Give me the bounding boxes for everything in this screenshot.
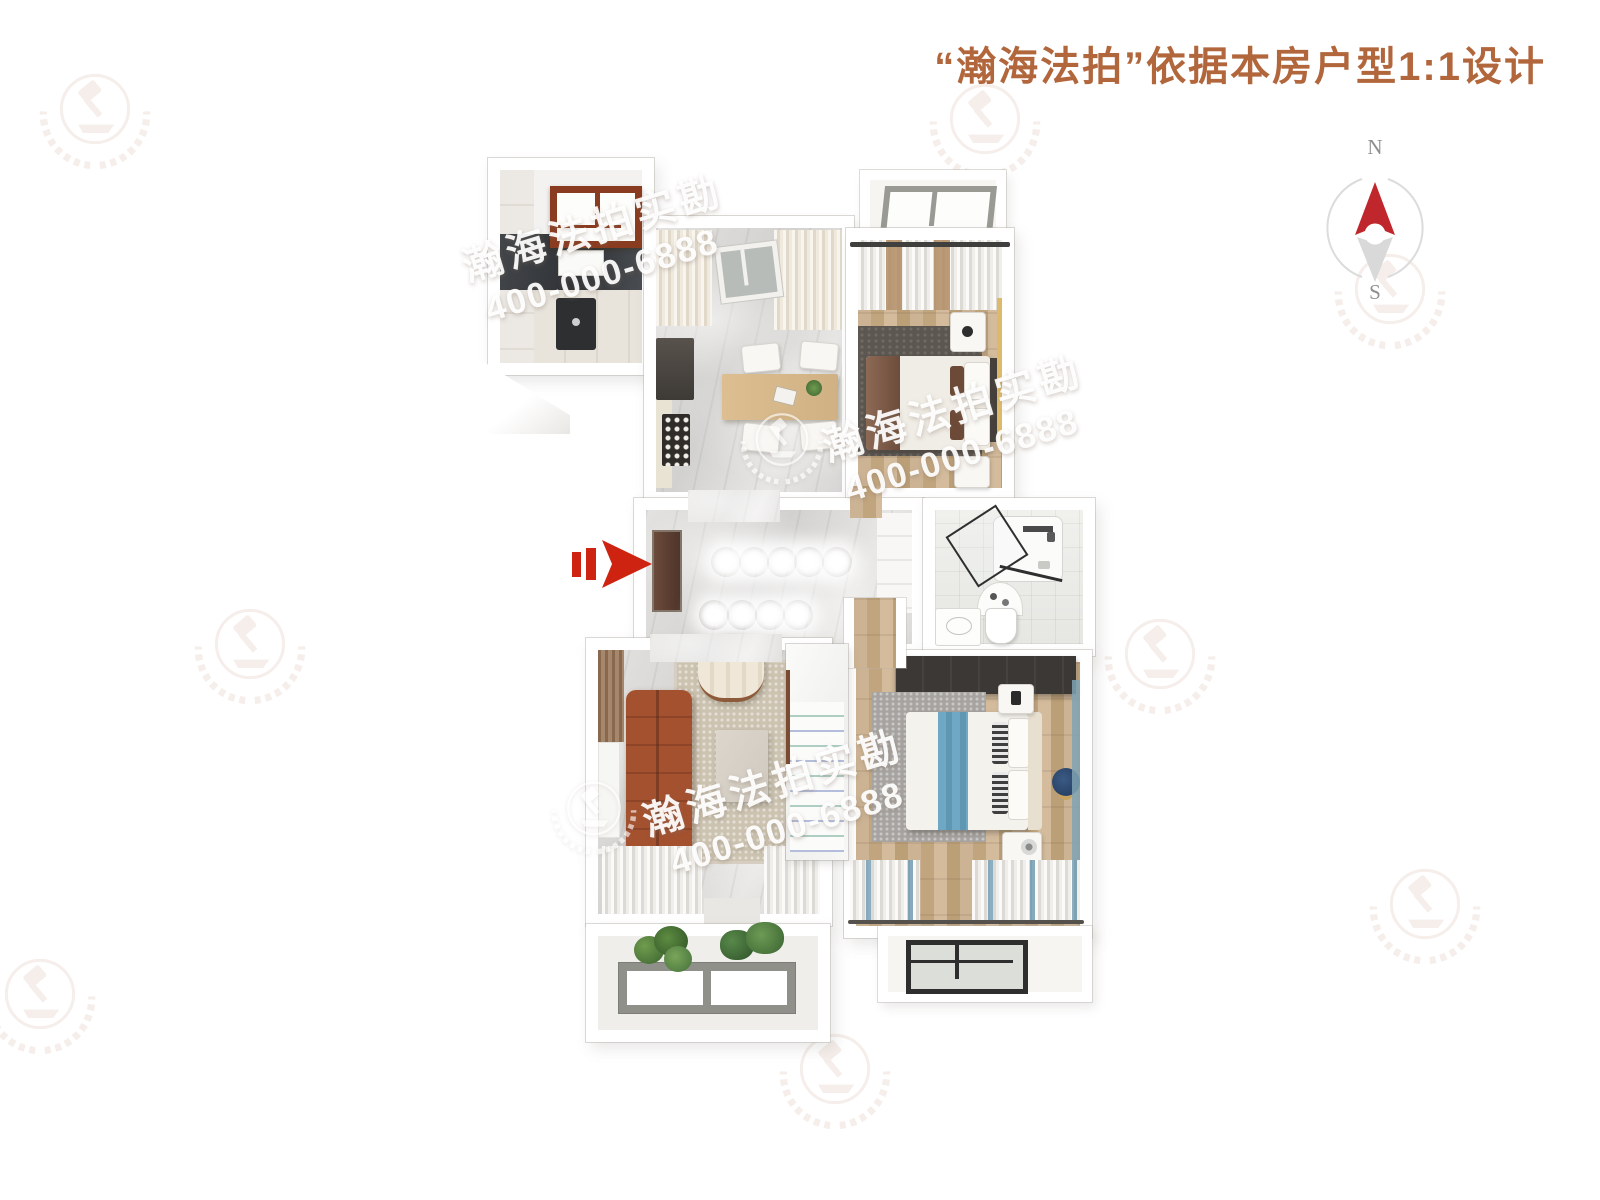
ceiling-light — [822, 547, 852, 577]
south-bay-window — [878, 926, 1092, 1002]
doorway-dining-hallway — [688, 490, 780, 522]
curtain-rod — [850, 242, 1010, 247]
bay-window-glass — [906, 940, 1028, 994]
shoe-cabinet — [662, 414, 690, 466]
niche-item-icon — [1002, 599, 1009, 606]
fan-icon — [1021, 839, 1037, 855]
window-pane — [711, 971, 787, 1005]
background-watermark-logo-icon — [35, 55, 155, 175]
plant — [720, 922, 786, 970]
bathroom — [923, 498, 1095, 656]
plant — [634, 926, 694, 978]
dining-curtain — [774, 230, 842, 330]
table-plant — [806, 380, 822, 396]
pillow — [1008, 770, 1030, 820]
brand-watermark-logo-icon — [737, 399, 827, 489]
compass-north-label: N — [1367, 135, 1382, 159]
bedroom-corridor — [844, 598, 906, 668]
ceiling-light — [711, 547, 741, 577]
curtain-gap — [934, 240, 950, 310]
dining-chair — [741, 342, 782, 374]
nightstand — [998, 684, 1034, 714]
table-lamp-icon — [962, 326, 973, 337]
plant-leaf — [746, 922, 784, 954]
floorplan-canvas: “瀚海法拍”依据本房户型1:1设计 N S — [0, 0, 1600, 1200]
sideboard — [656, 338, 694, 400]
ceiling-light — [794, 547, 824, 577]
ceiling-light — [767, 547, 797, 577]
headboard — [1028, 712, 1042, 830]
accent-pillow — [992, 772, 1008, 814]
niche-item-icon — [990, 593, 997, 600]
window-mullion — [911, 960, 1013, 963]
background-watermark-logo-icon — [1365, 850, 1485, 970]
shower-head-icon — [1047, 532, 1055, 542]
opening-hallway-living — [650, 634, 782, 662]
compass-icon: N S — [1315, 130, 1435, 302]
sink-basin-icon — [946, 617, 972, 635]
accent-pillow — [992, 722, 1008, 764]
curtain-rod — [848, 920, 1084, 924]
shower-drain-icon — [1038, 561, 1050, 569]
wardrobe — [896, 656, 1076, 694]
south-bedroom-curtain — [972, 860, 1080, 924]
dining-chair — [799, 340, 839, 371]
speaker-icon — [1011, 691, 1021, 705]
pillow — [1008, 718, 1030, 768]
background-watermark-logo-icon — [190, 590, 310, 710]
window-mullion — [929, 192, 938, 226]
entry-door — [652, 530, 682, 612]
balcony — [586, 924, 830, 1042]
compass: N S — [1315, 130, 1435, 302]
plant-leaf — [664, 946, 692, 972]
bed-runner — [938, 712, 968, 830]
ceiling-light — [783, 600, 813, 630]
background-watermark-logo-icon — [1100, 600, 1220, 720]
ceiling-light — [727, 600, 757, 630]
ceiling-light — [739, 547, 769, 577]
south-bed — [906, 712, 1028, 830]
background-watermark-logo-icon — [0, 940, 100, 1060]
nightstand — [950, 312, 986, 352]
brand-watermark-logo-icon — [548, 767, 640, 859]
wood-slat-panel — [598, 650, 624, 742]
window-mullion — [740, 249, 748, 285]
curtain-gap — [886, 240, 902, 310]
bathroom-sink — [935, 608, 981, 646]
north-bedroom-curtain — [858, 240, 1002, 310]
ceiling-light — [755, 600, 785, 630]
entry-arrow-icon — [572, 538, 656, 590]
toilet — [985, 608, 1017, 644]
compass-south-label: S — [1369, 280, 1381, 302]
south-bedroom-curtain — [850, 860, 920, 924]
ceiling-light — [699, 600, 729, 630]
appliance-dial-icon — [572, 318, 580, 326]
accent-wall-strip — [1072, 680, 1080, 864]
page-title: “瀚海法拍”依据本房户型1:1设计 — [934, 34, 1546, 92]
